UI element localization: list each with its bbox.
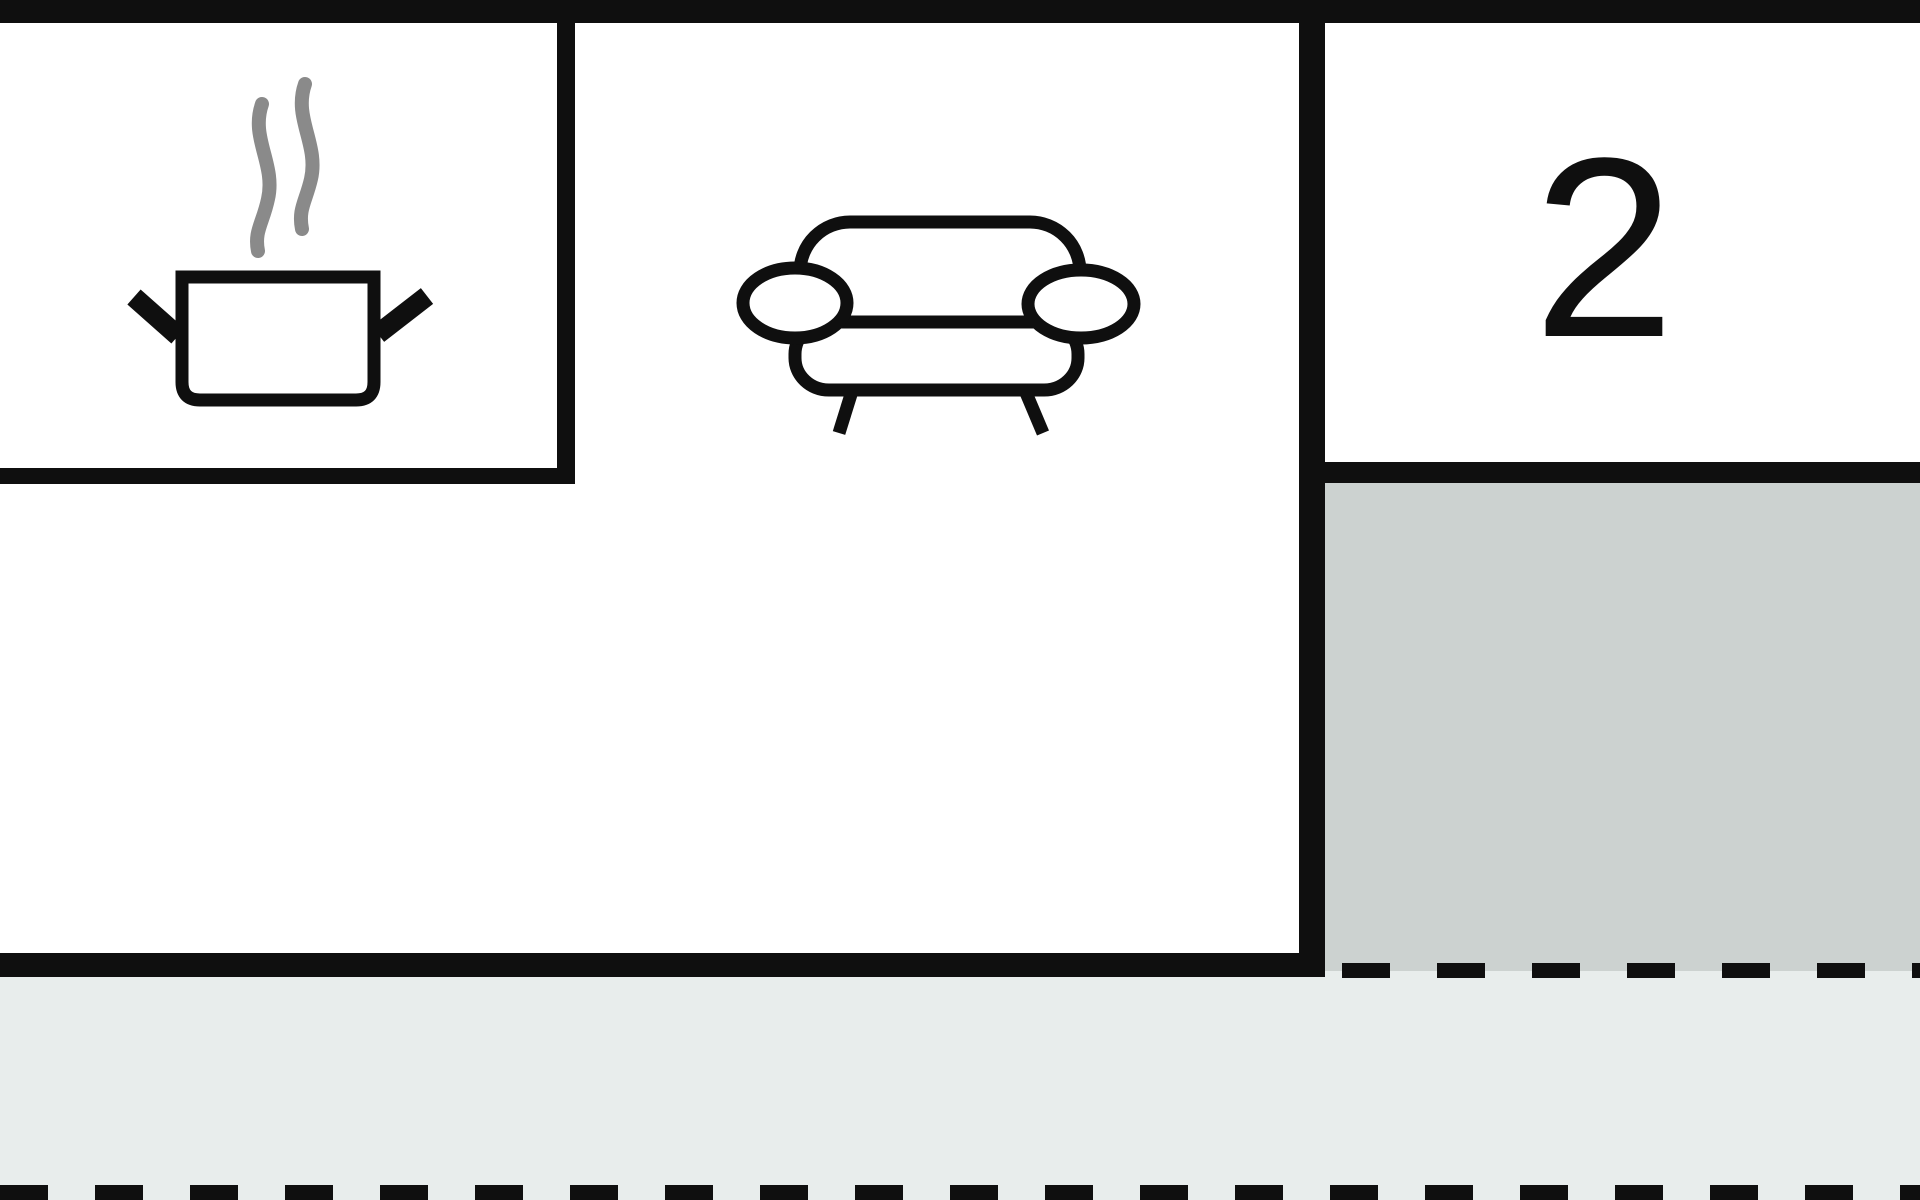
terrace-lower-area [0,971,1920,1200]
kitchen-wall-bottom [0,468,575,484]
terrace-upper-area [1325,483,1920,971]
floor-plan: 2 [0,0,1920,1200]
room-number-label: 2 [1454,120,1754,376]
patio-edge-dashed-line [0,1185,1920,1200]
partition-wall-vertical [1299,0,1325,977]
bedroom-wall-bottom [1299,462,1920,483]
cooking-pot-icon [134,277,427,400]
sofa-icon [743,222,1134,433]
terrace-boundary-dashed-line [1342,963,1920,978]
living-wall-bottom [0,953,1325,977]
steam-icon [257,84,313,251]
kitchen-wall-right [557,0,575,484]
wall-top [0,0,1920,23]
